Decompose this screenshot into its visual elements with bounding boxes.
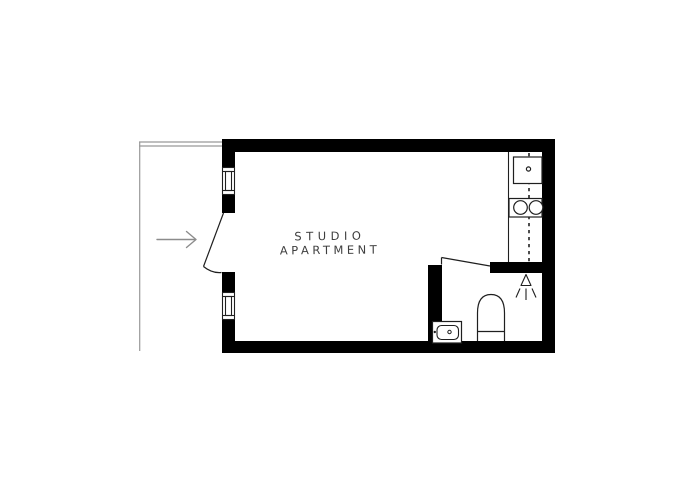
- window-upper-icon: [223, 168, 235, 195]
- bathroom-door-icon: [442, 258, 491, 267]
- stove-burners-icon: [509, 199, 543, 218]
- toilet-icon: [478, 295, 505, 342]
- corridor-boundary-lines: [139, 142, 222, 351]
- room-label-line2: APARTMENT: [245, 242, 415, 259]
- entrance-door-icon: [204, 213, 224, 273]
- bathroom-sink-icon: [433, 322, 462, 344]
- window-lower-icon: [223, 293, 235, 320]
- entrance-arrow-icon: [157, 232, 196, 248]
- room-label: STUDIO APARTMENT: [245, 229, 415, 259]
- shower-icon: [516, 275, 536, 301]
- floor-plan-canvas: STUDIO APARTMENT: [0, 0, 700, 500]
- kitchen-sink-icon: [514, 157, 543, 184]
